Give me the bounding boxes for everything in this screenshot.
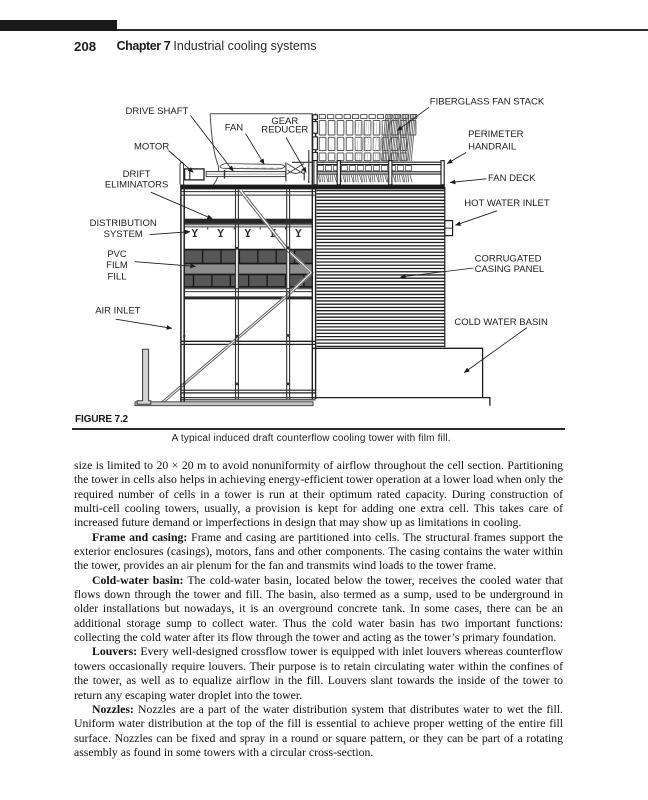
svg-text:PVC: PVC (107, 249, 127, 260)
svg-text:Y: Y (295, 227, 302, 239)
svg-text:SYSTEM: SYSTEM (104, 229, 143, 240)
svg-text:Y: Y (244, 227, 251, 239)
svg-text:DISTRIBUTION: DISTRIBUTION (90, 218, 157, 229)
svg-text:HOT WATER INLET: HOT WATER INLET (464, 198, 550, 209)
svg-text:CASING PANEL: CASING PANEL (475, 264, 545, 275)
svg-text:DRIFT: DRIFT (123, 169, 151, 180)
svg-text:Y: Y (191, 227, 198, 239)
svg-text:FILL: FILL (107, 272, 126, 283)
svg-text:FAN DECK: FAN DECK (488, 173, 536, 184)
svg-text:ELIMINATORS: ELIMINATORS (105, 180, 169, 191)
svg-text:AIR INLET: AIR INLET (95, 306, 141, 317)
svg-text:REDUCER: REDUCER (261, 125, 308, 136)
svg-text:Y: Y (217, 227, 224, 239)
svg-text:COLD WATER BASIN: COLD WATER BASIN (454, 317, 548, 328)
svg-text:CORRUGATED: CORRUGATED (475, 253, 542, 264)
svg-text:HANDRAIL: HANDRAIL (468, 142, 516, 153)
svg-text:MOTOR: MOTOR (134, 142, 169, 153)
svg-text:FILM: FILM (106, 260, 128, 271)
svg-text:FAN: FAN (225, 123, 244, 134)
svg-text:DRIVE SHAFT: DRIVE SHAFT (126, 106, 189, 117)
svg-text:PERIMETER: PERIMETER (468, 129, 524, 140)
svg-text:FIBERGLASS FAN STACK: FIBERGLASS FAN STACK (430, 96, 545, 107)
